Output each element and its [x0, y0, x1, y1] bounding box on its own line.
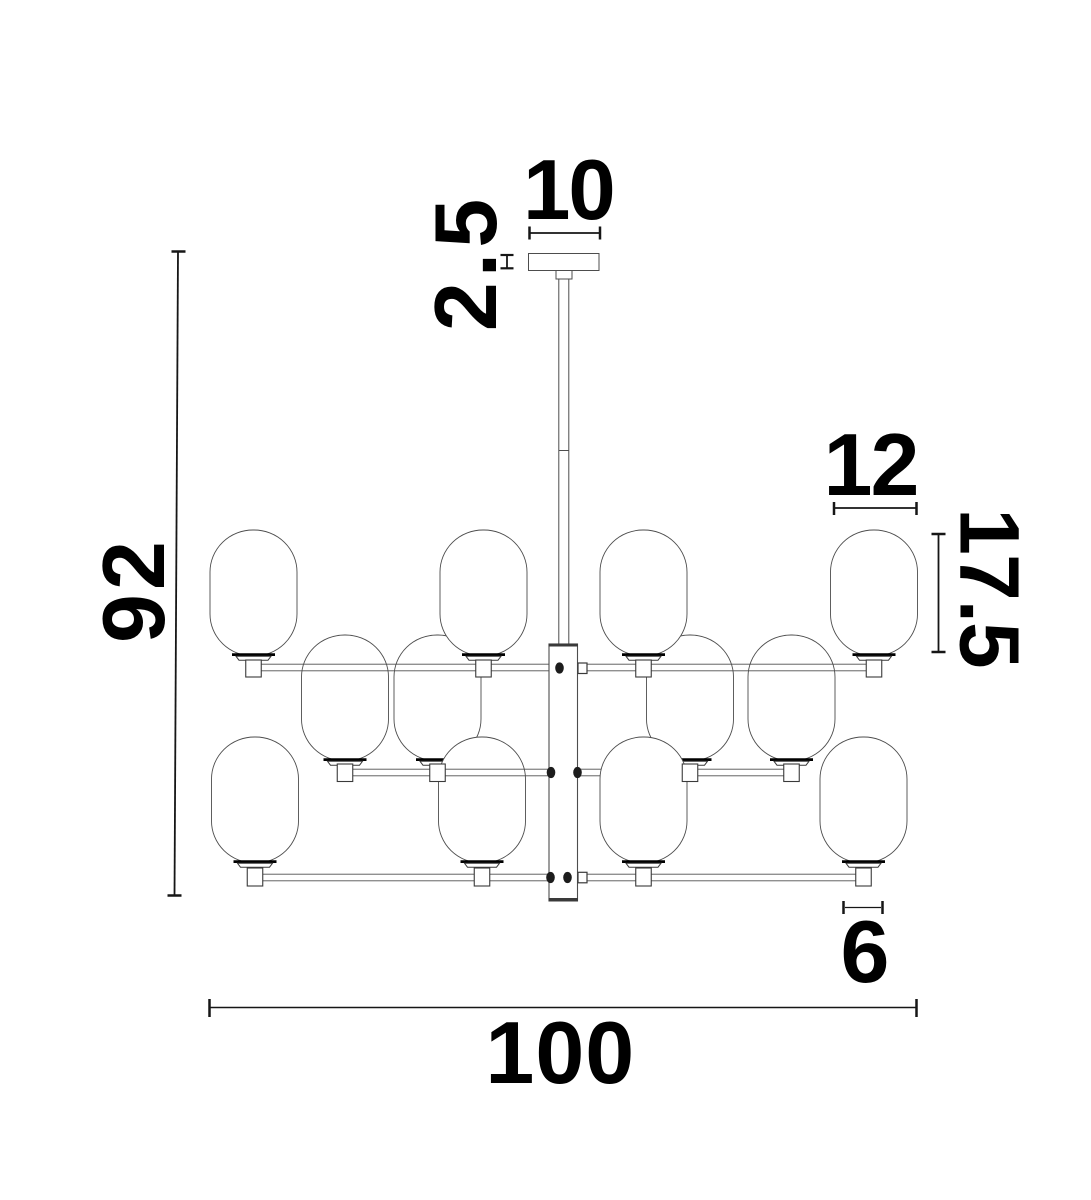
svg-text:17.5: 17.5: [943, 508, 1037, 668]
svg-text:100: 100: [485, 1003, 635, 1102]
svg-text:12: 12: [824, 415, 918, 514]
svg-text:2.5: 2.5: [416, 194, 515, 331]
svg-text:92: 92: [84, 537, 183, 643]
svg-text:6: 6: [841, 902, 890, 1001]
svg-text:10: 10: [523, 143, 614, 238]
